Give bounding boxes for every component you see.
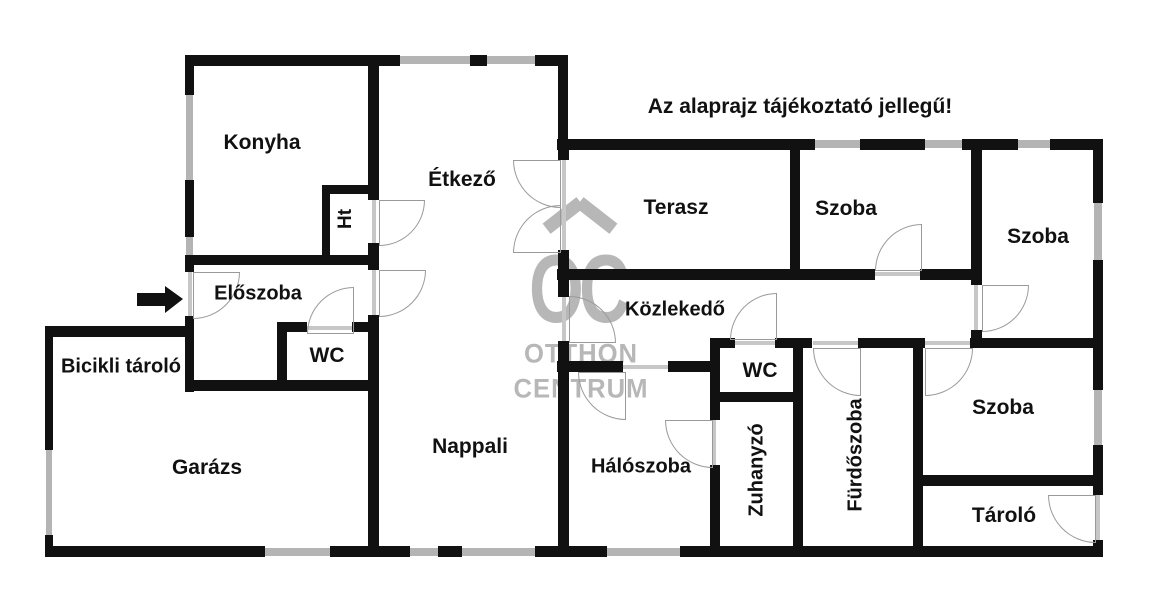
door-opening — [735, 341, 775, 345]
room-label-furdoszoba: Fürdőszoba — [845, 398, 868, 511]
wall-segment — [558, 139, 569, 160]
room-label-tarolo: Tároló — [972, 504, 1036, 528]
door-opening — [562, 297, 566, 341]
wall-segment — [710, 392, 803, 402]
wall-segment — [368, 315, 379, 557]
door-opening — [188, 272, 192, 316]
room-label-zuhanyzo: Zuhanyzó — [746, 423, 769, 516]
door-opening — [813, 341, 858, 345]
room-label-szoba-3: Szoba — [972, 396, 1034, 420]
window-segment — [265, 548, 330, 556]
room-label-ht: Ht — [335, 209, 357, 229]
wall-segment — [322, 185, 330, 255]
wall-segment — [558, 55, 568, 139]
window-segment — [186, 95, 193, 180]
room-label-wc-2: WC — [743, 359, 778, 383]
wall-segment — [185, 316, 194, 392]
room-label-szoba-2: Szoba — [1007, 225, 1069, 249]
door-opening — [875, 272, 920, 276]
wall-segment — [790, 150, 800, 269]
wall-segment — [1093, 260, 1103, 390]
wall-segment — [45, 326, 193, 337]
wall-segment — [558, 250, 569, 297]
wall-segment — [45, 535, 53, 557]
wall-segment — [793, 338, 803, 557]
door-opening — [562, 160, 566, 250]
entrance-arrow-icon — [137, 286, 183, 313]
wall-segment — [185, 180, 194, 237]
window-segment — [400, 56, 470, 64]
wall-segment — [45, 326, 53, 450]
door-opening — [372, 200, 376, 243]
wall-segment — [557, 269, 875, 280]
wall-segment — [557, 139, 815, 150]
room-label-bicikli-tarolo: Bicikli tároló — [61, 356, 181, 379]
wall-segment — [971, 139, 982, 285]
wall-segment — [710, 465, 720, 557]
wall-segment — [913, 338, 923, 557]
window-segment — [925, 140, 962, 148]
wall-segment — [970, 338, 1103, 348]
entrance-arrow-shaft — [137, 293, 165, 306]
wall-segment — [860, 139, 925, 150]
room-label-kozlekedo: Közlekedő — [625, 299, 725, 322]
room-label-etkezo: Étkező — [428, 168, 496, 192]
door-opening — [1096, 495, 1100, 540]
wall-segment — [710, 338, 720, 420]
window-segment — [607, 548, 680, 556]
room-label-wc-1: WC — [310, 344, 345, 368]
window-segment — [462, 548, 535, 556]
wall-segment — [185, 258, 194, 272]
wall-segment — [438, 546, 462, 557]
room-label-haloszoba: Hálószoba — [591, 456, 691, 479]
wall-segment — [680, 546, 1103, 557]
window-segment — [1018, 140, 1050, 148]
room-label-nappali: Nappali — [432, 435, 508, 459]
wall-segment — [1093, 445, 1103, 495]
wall-segment — [535, 546, 607, 557]
window-segment — [487, 56, 535, 64]
wall-segment — [185, 380, 378, 391]
watermark-roof-icon — [576, 197, 618, 234]
wall-segment — [368, 243, 379, 270]
wall-segment — [185, 255, 378, 265]
wall-segment — [558, 341, 569, 557]
wall-segment — [971, 330, 982, 348]
door-opening — [372, 270, 376, 315]
door-opening — [925, 341, 970, 345]
room-label-konyha: Konyha — [223, 131, 300, 155]
wall-segment — [1093, 139, 1103, 203]
floor-plan: OC OTTHON CENTRUM Az alaprajz tájékoztat… — [0, 0, 1160, 600]
room-label-garazs: Garázs — [172, 456, 242, 480]
window-segment — [1094, 203, 1102, 260]
room-label-eloszoba: Előszoba — [214, 283, 302, 306]
wall-segment — [913, 475, 1103, 486]
window-segment — [46, 450, 52, 535]
entrance-arrow-head — [165, 286, 183, 313]
room-label-terasz: Terasz — [644, 196, 709, 220]
wall-segment — [45, 546, 265, 557]
window-segment — [410, 548, 438, 556]
window-segment — [1094, 390, 1102, 445]
door-opening — [974, 285, 978, 330]
wall-segment — [368, 55, 379, 200]
wall-segment — [185, 55, 194, 95]
door-opening — [623, 365, 668, 369]
disclaimer-text: Az alaprajz tájékoztató jellegű! — [648, 95, 953, 119]
wall-segment — [470, 55, 487, 66]
room-label-szoba-1: Szoba — [815, 197, 877, 221]
window-segment — [815, 140, 860, 148]
wall-segment — [277, 322, 287, 380]
